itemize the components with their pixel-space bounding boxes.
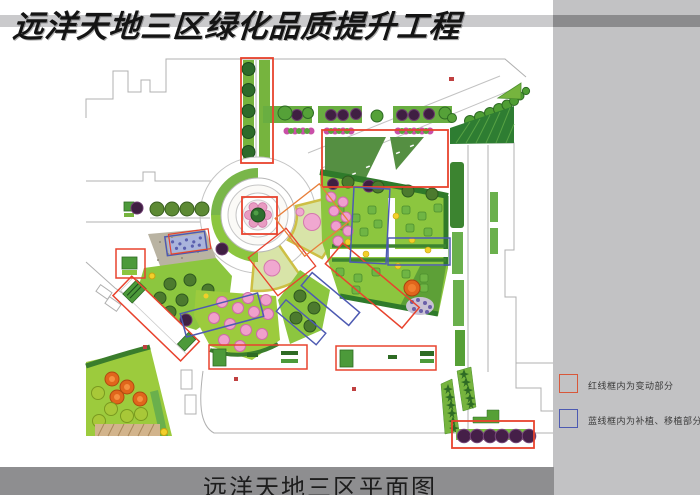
slide-canvas: 远洋天地三区绿化品质提升工程 [0,0,700,495]
west-road-trees [124,202,210,218]
flower-shrub-row [284,128,434,135]
right-green-strips [450,162,498,366]
legend-label-replant: 蓝线框内为补植、移植部分 [588,414,700,427]
legend-item-replant: 蓝线框内为补植、移植部分 [558,400,698,429]
bottom-left-lawn [86,347,172,436]
corridor-box-right [336,346,436,370]
left-planter [116,249,145,278]
legend-item-changed: 红线框内为变动部分 [558,371,698,400]
legend: 红线框内为变动部分 蓝线框内为补植、移植部分 [558,371,698,429]
legend-swatch-blue [559,409,578,428]
south-orchard [194,290,280,360]
legend-label-changed: 红线框内为变动部分 [588,379,674,392]
purple-tree-row [452,421,536,448]
plan-caption: 远洋天地三区平面图 [203,468,437,495]
conifer-strips [441,367,499,434]
legend-swatch-red [559,374,578,393]
